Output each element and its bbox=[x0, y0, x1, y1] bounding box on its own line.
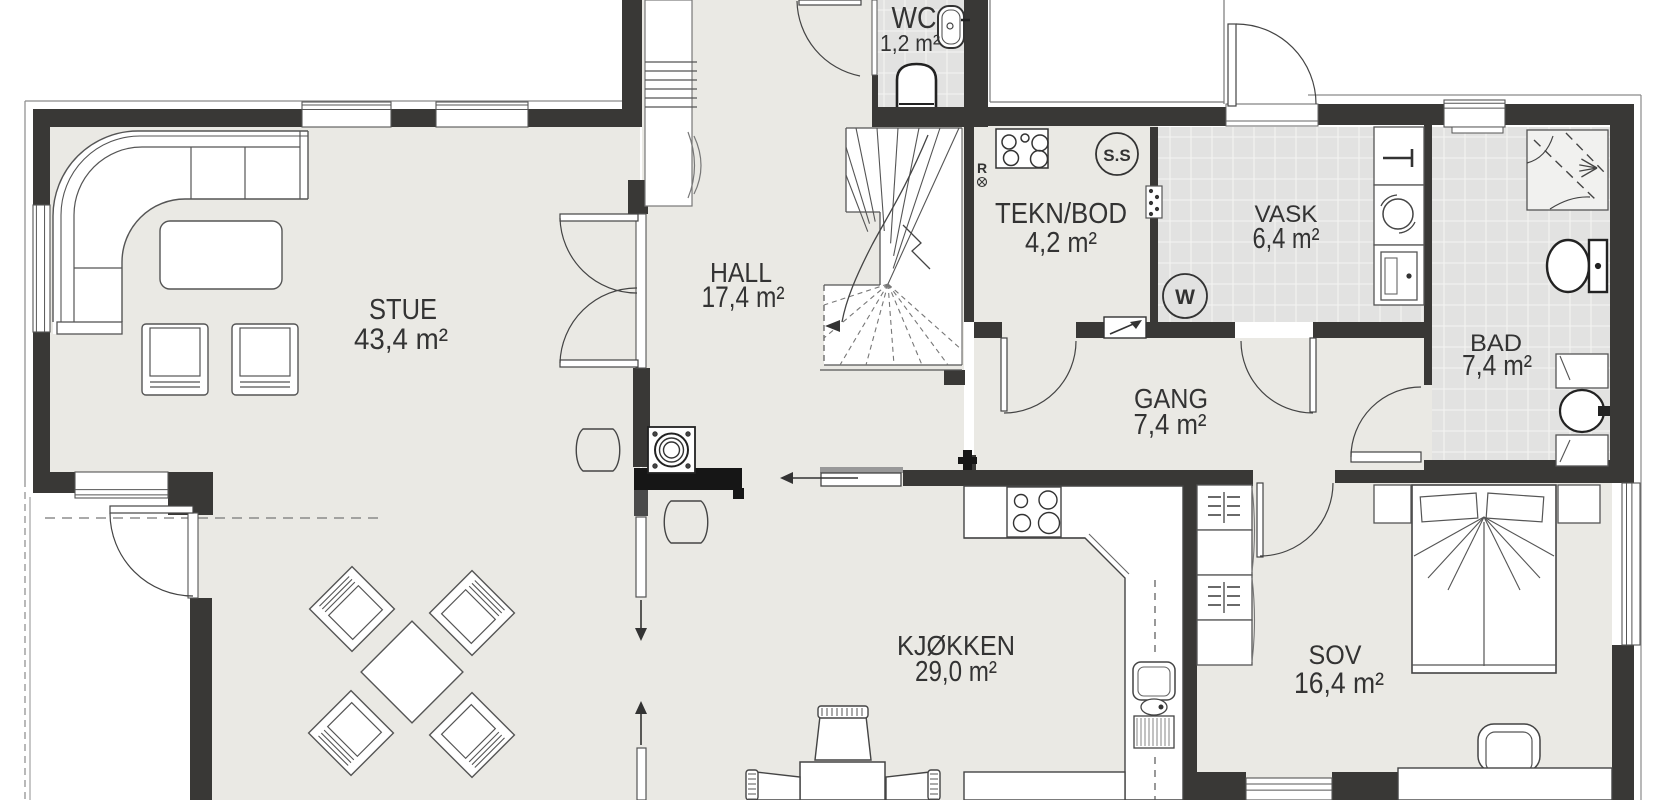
svg-text:43,4 m²: 43,4 m² bbox=[354, 323, 448, 356]
svg-text:16,4 m²: 16,4 m² bbox=[1294, 667, 1384, 700]
svg-text:W: W bbox=[1175, 286, 1195, 309]
svg-text:4,2 m²: 4,2 m² bbox=[1025, 227, 1097, 259]
svg-text:S.S: S.S bbox=[1103, 146, 1130, 165]
svg-text:17,4 m²: 17,4 m² bbox=[702, 281, 785, 314]
svg-text:R: R bbox=[977, 160, 987, 176]
svg-text:SOV: SOV bbox=[1309, 640, 1362, 670]
svg-text:7,4 m²: 7,4 m² bbox=[1462, 350, 1532, 382]
svg-text:6,4 m²: 6,4 m² bbox=[1253, 223, 1320, 255]
svg-text:TEKN/BOD: TEKN/BOD bbox=[995, 198, 1127, 230]
svg-text:STUE: STUE bbox=[369, 294, 437, 326]
svg-text:7,4 m²: 7,4 m² bbox=[1134, 409, 1207, 441]
svg-text:1,2 m²: 1,2 m² bbox=[880, 30, 940, 56]
svg-text:29,0 m²: 29,0 m² bbox=[915, 656, 997, 688]
